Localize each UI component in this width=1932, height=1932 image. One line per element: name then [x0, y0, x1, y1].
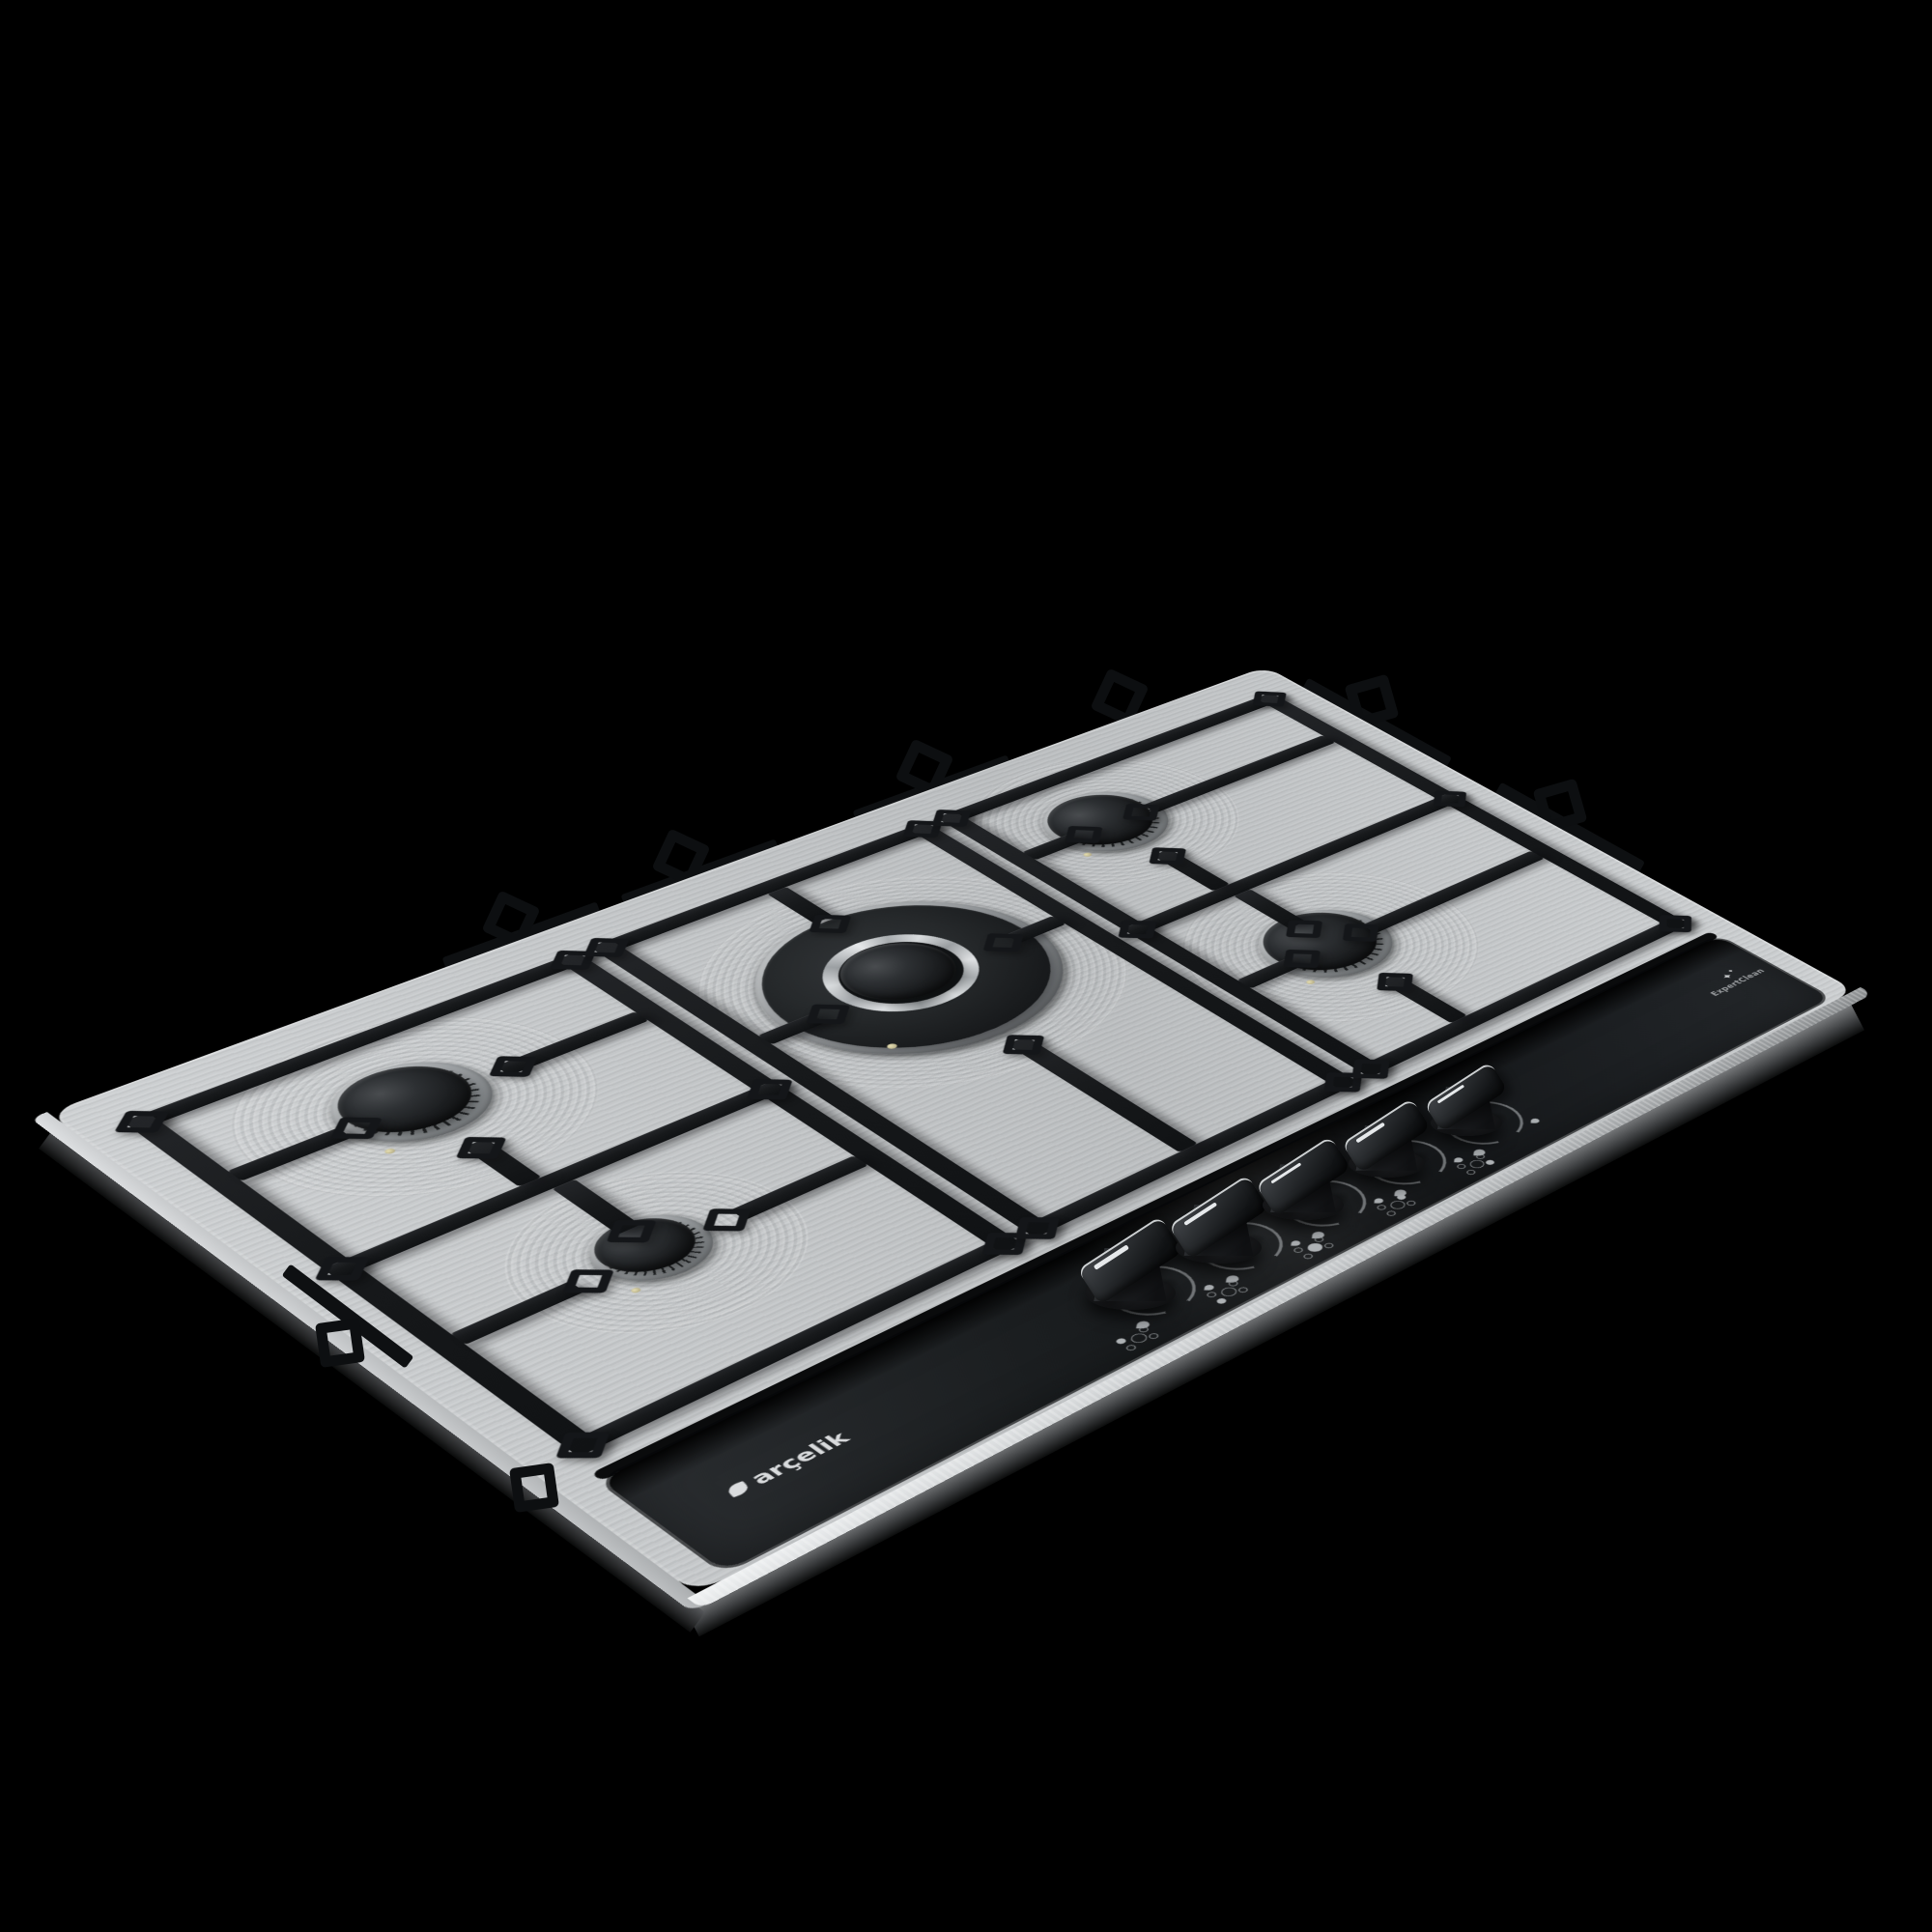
grid-post: [1003, 1035, 1045, 1055]
dot-front-left: [1385, 1209, 1398, 1216]
dot-back-left: [1115, 1337, 1128, 1345]
grid-post-silhouette: [509, 1463, 559, 1513]
grid-post: [1122, 804, 1159, 821]
dot-front-left: [1464, 1169, 1477, 1176]
control-knob-5[interactable]: [1429, 1063, 1504, 1136]
dot-center: [1304, 1241, 1325, 1254]
control-knob-3[interactable]: [1261, 1137, 1346, 1220]
grid-post: [1253, 691, 1287, 706]
grid-post: [1659, 915, 1691, 932]
grid-post: [932, 810, 972, 827]
dot-back-right: [1227, 1280, 1240, 1288]
dot-center: [1387, 1199, 1407, 1210]
grid-post: [555, 1433, 610, 1459]
grid-post: [1343, 923, 1379, 942]
grid-post: [562, 1269, 614, 1293]
grid-post: [1351, 1059, 1389, 1078]
dot-front-left: [1215, 1297, 1229, 1305]
dot-center: [1467, 1158, 1488, 1170]
grid-post: [747, 1079, 793, 1100]
dot-front-right: [1236, 1286, 1250, 1293]
grid-post: [1149, 847, 1186, 865]
grid-post: [1015, 1217, 1060, 1239]
dot-back-left: [1455, 1163, 1467, 1170]
gas-hob-top: arçelik ✦✦ ExpertClean: [48, 667, 1855, 1594]
dot-back-left: [1376, 1204, 1388, 1210]
grid-post: [1065, 826, 1103, 843]
grid-post: [809, 915, 851, 934]
dot-back-left: [1292, 1246, 1304, 1254]
grid-post: [1283, 950, 1321, 968]
grid-post: [583, 938, 630, 957]
dot-front-right: [1484, 1159, 1496, 1166]
grid-post: [1118, 921, 1156, 939]
control-knob-4[interactable]: [1347, 1099, 1427, 1178]
dot-front-right: [1147, 1332, 1160, 1340]
grid-post: [1377, 973, 1413, 991]
grid-post: [1286, 920, 1322, 938]
dot-front-left: [1302, 1253, 1315, 1261]
dot-back-left: [1205, 1291, 1218, 1298]
dot-front-right: [1405, 1200, 1417, 1207]
dot-front-right: [1322, 1242, 1335, 1249]
control-knob-2[interactable]: [1174, 1176, 1264, 1264]
dot-back-right: [1137, 1325, 1151, 1333]
grid-post-silhouette: [315, 1318, 365, 1368]
dot-front-left: [1124, 1344, 1138, 1351]
control-knob-1[interactable]: [1083, 1217, 1178, 1310]
grid-post: [983, 933, 1024, 952]
product-render-canvas: arçelik ✦✦ ExpertClean: [0, 0, 1932, 1932]
dot-center: [1218, 1286, 1240, 1298]
grid-post: [1434, 790, 1467, 807]
grid-post: [607, 1220, 657, 1243]
dot-center: [1127, 1332, 1150, 1345]
grid-post: [806, 1005, 850, 1025]
grid-post: [702, 1208, 751, 1231]
